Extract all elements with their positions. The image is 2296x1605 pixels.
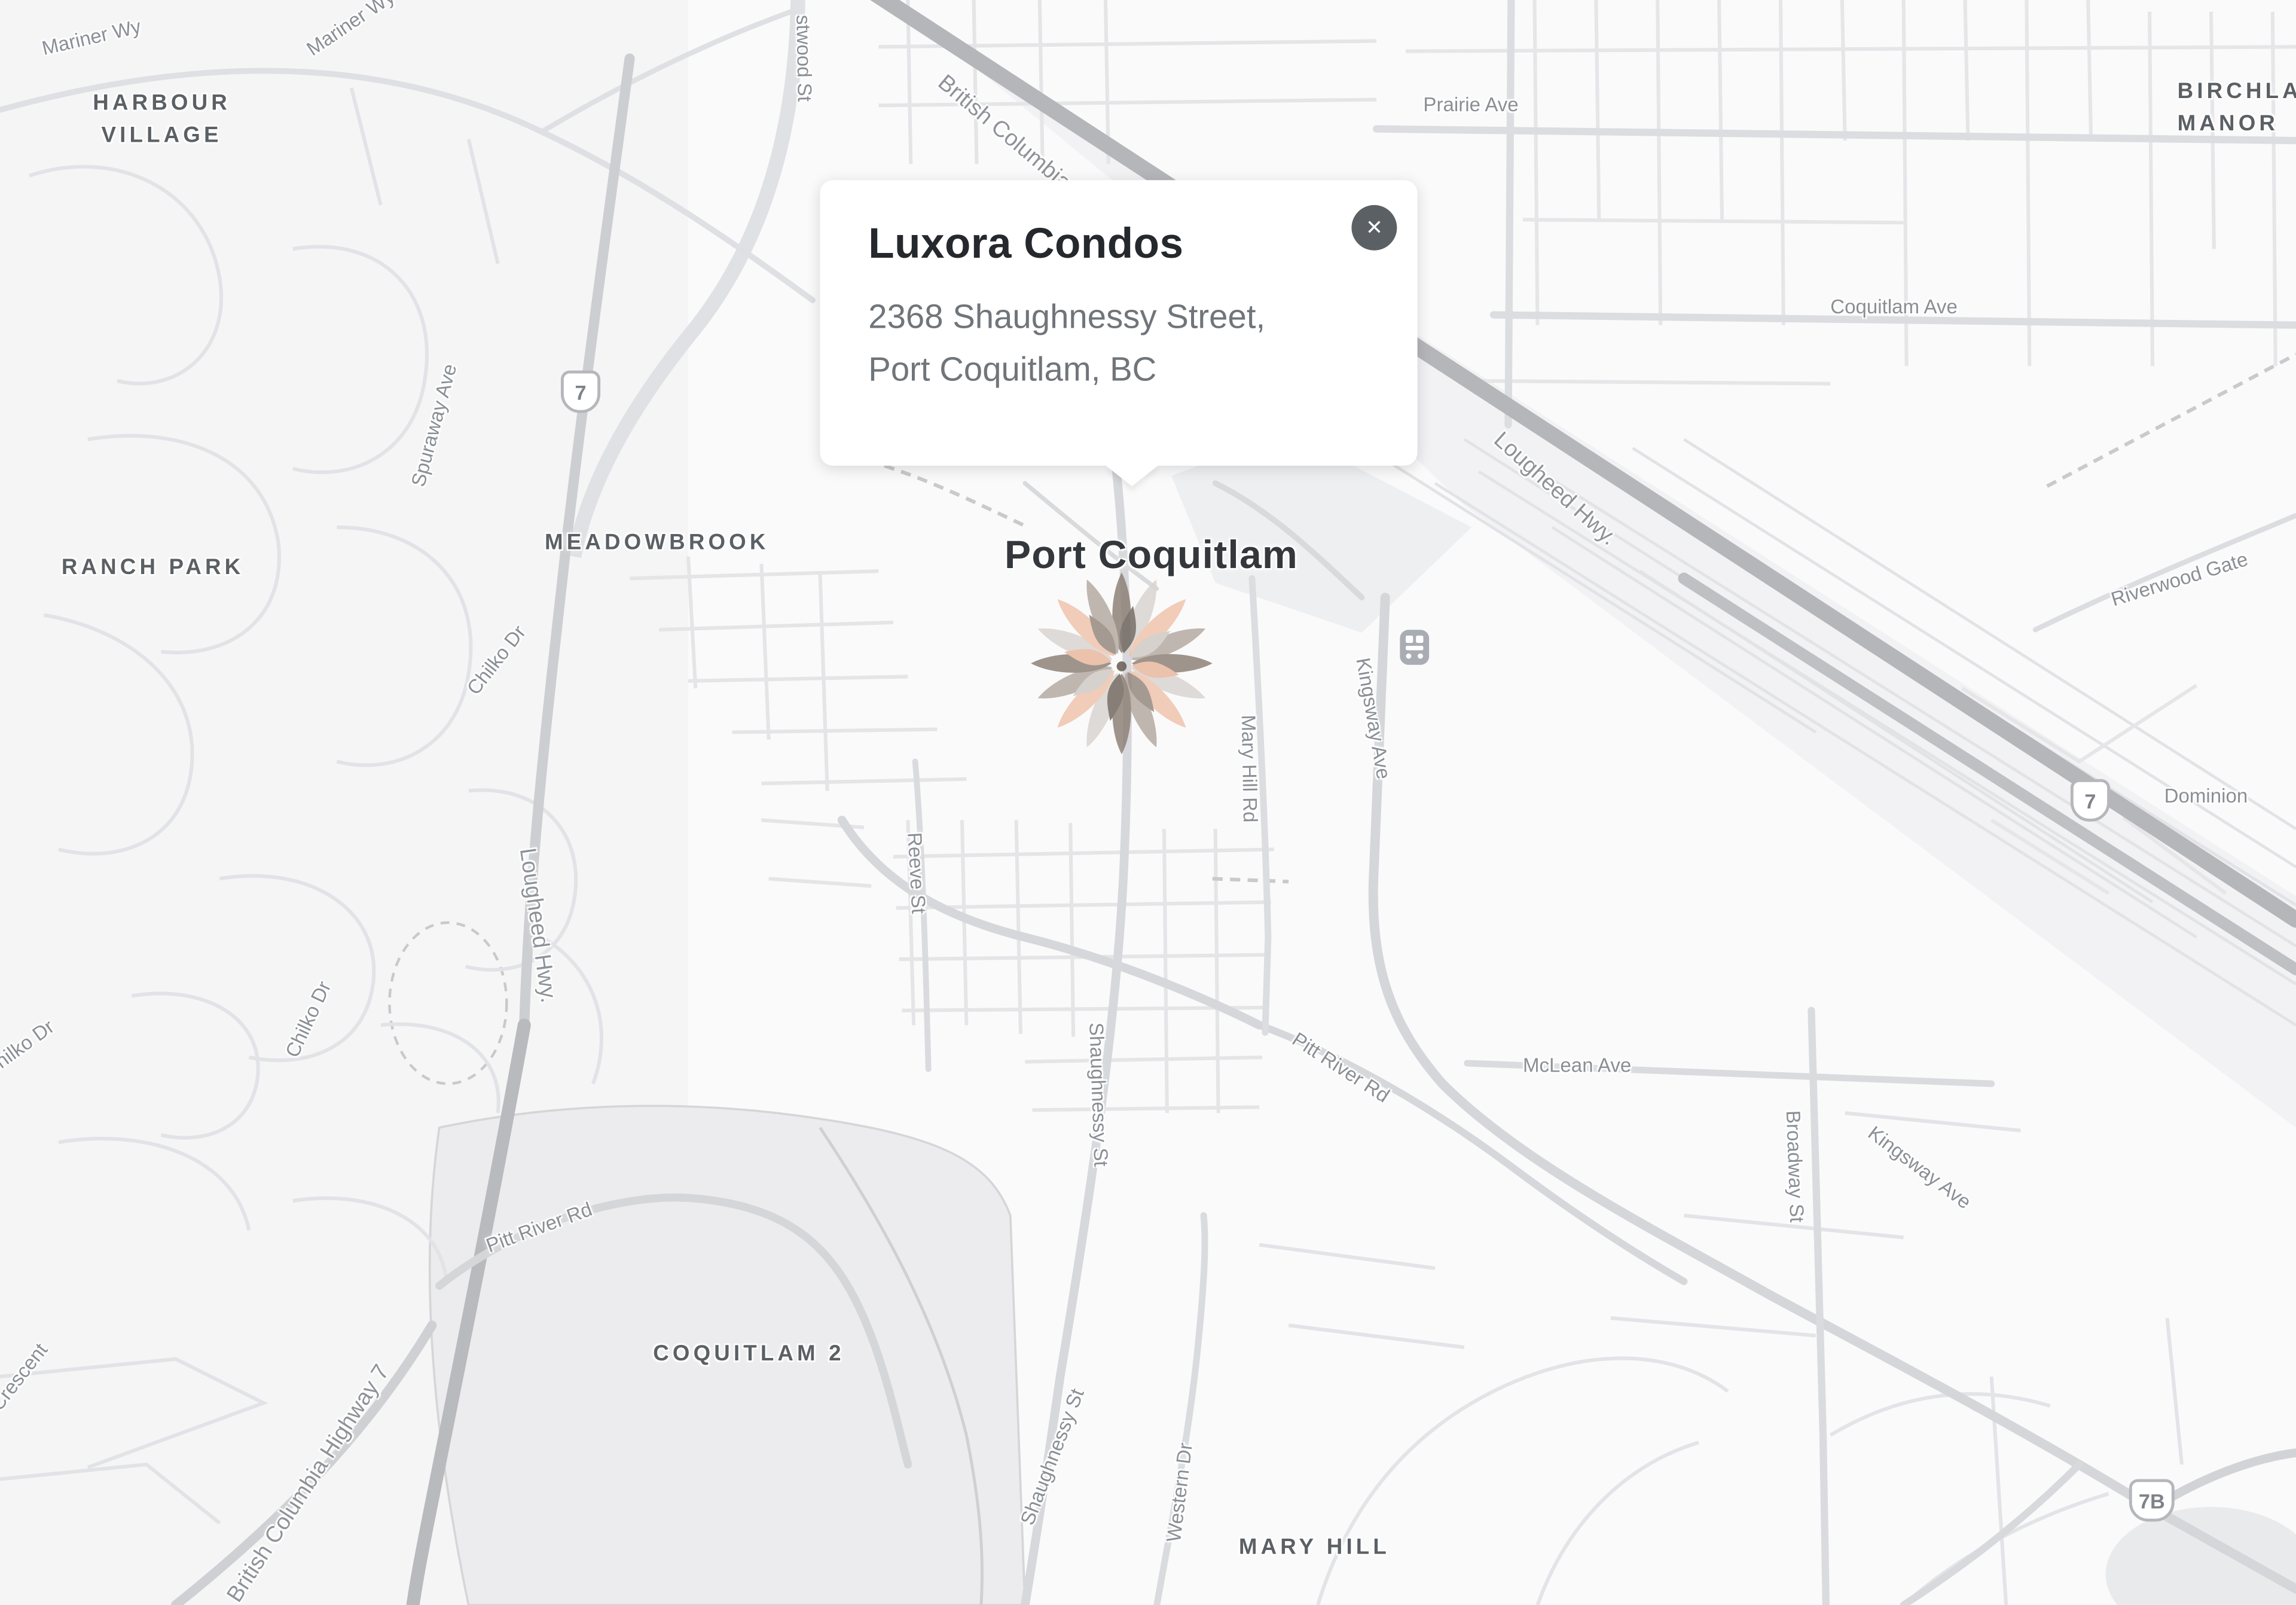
- highway-shield-7-west-label: 7: [575, 380, 586, 404]
- info-window-address: 2368 Shaughnessy Street, Port Coquitlam,…: [868, 290, 1367, 396]
- neighborhood-label-meadowbrook: MEADOWBROOK: [545, 527, 770, 559]
- neighborhood-label-birchland-manor: BIRCHLAND MANOR: [2178, 76, 2296, 140]
- neighborhood-label-mary-hill: MARY HILL: [1239, 1532, 1390, 1564]
- street-label-prairie-ave: Prairie Ave: [1423, 94, 1518, 116]
- map-viewport: Mariner Wy Mariner Wy HARBOUR VILLAGE st…: [0, 0, 2296, 1605]
- street-label-coquitlam-ave: Coquitlam Ave: [1830, 296, 1958, 318]
- neighborhood-label-ranch-park: RANCH PARK: [62, 552, 244, 584]
- info-window: Luxora Condos 2368 Shaughnessy Street, P…: [820, 180, 1417, 466]
- highway-shield-7-west: 7: [561, 371, 600, 413]
- neighborhood-label-harbour-village: HARBOUR VILLAGE: [56, 88, 268, 152]
- street-label-reeve-st: Reeve St: [903, 832, 930, 914]
- street-label-westwood-st: stwood St: [792, 14, 816, 102]
- train-station-icon[interactable]: [1400, 630, 1429, 672]
- map-canvas[interactable]: Mariner Wy Mariner Wy HARBOUR VILLAGE st…: [0, 0, 2296, 1605]
- street-label-mary-hill-rd: Mary Hill Rd: [1237, 715, 1261, 823]
- highway-shield-7-east: 7: [2071, 779, 2110, 822]
- neighborhood-label-coquitlam-2: COQUITLAM 2: [653, 1338, 844, 1370]
- info-window-pointer: [1104, 464, 1160, 486]
- close-icon[interactable]: ✕: [1351, 205, 1397, 251]
- address-line-2: Port Coquitlam, BC: [868, 350, 1156, 389]
- address-line-1: 2368 Shaughnessy Street,: [868, 297, 1265, 335]
- street-label-broadway-st: Broadway St: [1782, 1110, 1808, 1223]
- highway-shield-7b: 7B: [2129, 1479, 2175, 1521]
- city-label-port-coquitlam: Port Coquitlam: [1004, 533, 1298, 578]
- highway-shield-7-east-label: 7: [2084, 789, 2096, 812]
- street-label-dominion: Dominion: [2164, 785, 2248, 807]
- street-label-mclean-ave: McLean Ave: [1523, 1054, 1631, 1076]
- brand-flower-marker[interactable]: [1022, 564, 1221, 770]
- highway-shield-7b-label: 7B: [2139, 1488, 2165, 1512]
- info-window-title: Luxora Condos: [868, 221, 1367, 270]
